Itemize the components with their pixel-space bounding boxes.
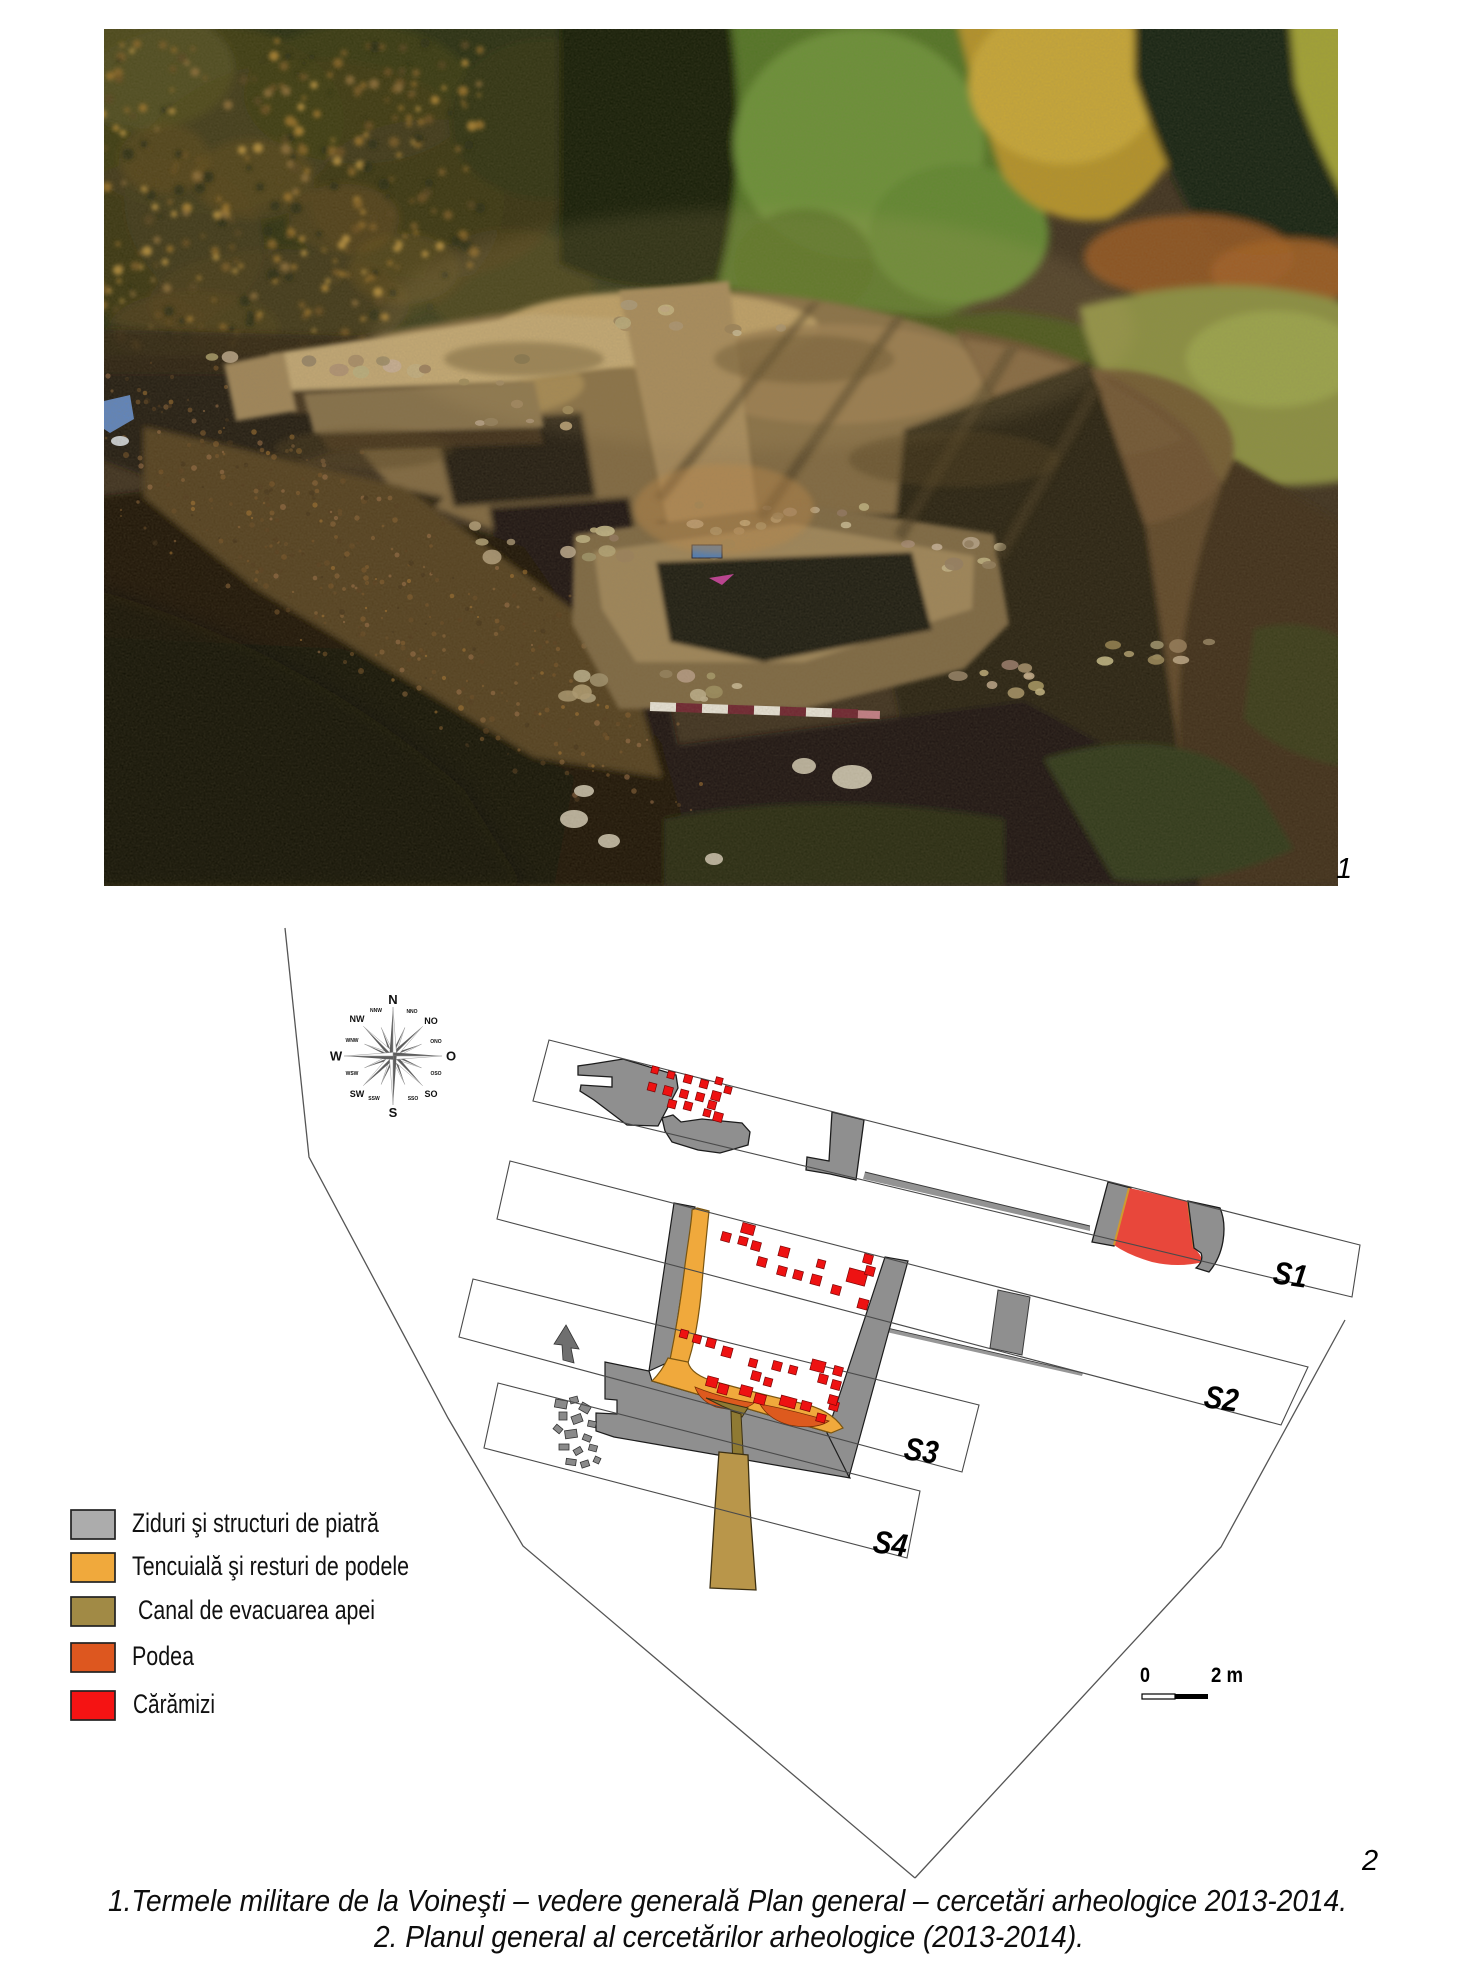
svg-text:NO: NO <box>424 1016 438 1026</box>
svg-text:2. Planul general al cercetări: 2. Planul general al cercetărilor arheol… <box>373 1919 1084 1954</box>
svg-text:S1: S1 <box>1271 1254 1310 1294</box>
svg-text:NW: NW <box>350 1014 365 1024</box>
svg-text:Tencuială şi resturi de podele: Tencuială şi resturi de podele <box>132 1551 409 1581</box>
svg-text:S2: S2 <box>1202 1378 1241 1418</box>
svg-text:N: N <box>388 992 397 1007</box>
svg-text:SW: SW <box>350 1089 365 1099</box>
svg-text:1.Termele militare de la Voine: 1.Termele militare de la Voineşti – vede… <box>108 1883 1347 1918</box>
svg-text:S: S <box>389 1105 398 1120</box>
svg-text:OSO: OSO <box>430 1071 441 1077</box>
svg-text:0: 0 <box>1140 1664 1150 1687</box>
svg-text:WNW: WNW <box>345 1038 358 1044</box>
svg-text:2 m: 2 m <box>1211 1664 1243 1687</box>
svg-text:ONO: ONO <box>430 1039 442 1045</box>
svg-text:Canal de evacuarea apei: Canal de evacuarea apei <box>138 1595 375 1625</box>
svg-text:S4: S4 <box>871 1523 910 1563</box>
svg-text:SO: SO <box>424 1089 437 1099</box>
svg-text:SSO: SSO <box>408 1096 419 1102</box>
svg-text:NNW: NNW <box>370 1008 382 1014</box>
svg-text:WSW: WSW <box>346 1071 359 1077</box>
svg-text:SSW: SSW <box>368 1096 380 1102</box>
svg-text:Ziduri şi structuri de piatră: Ziduri şi structuri de piatră <box>132 1508 380 1538</box>
svg-text:NNO: NNO <box>406 1009 417 1015</box>
svg-text:Podea: Podea <box>132 1641 195 1671</box>
svg-text:S3: S3 <box>902 1430 941 1470</box>
svg-text:Cărămizi: Cărămizi <box>133 1689 215 1719</box>
svg-text:W: W <box>330 1049 343 1064</box>
svg-text:O: O <box>446 1049 456 1064</box>
